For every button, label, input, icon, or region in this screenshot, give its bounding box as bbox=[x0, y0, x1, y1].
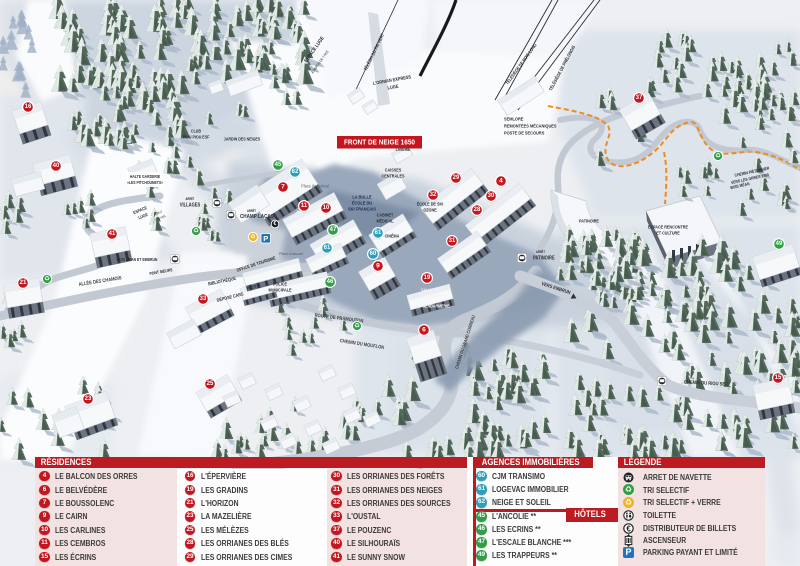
svg-text:OZONE: OZONE bbox=[423, 207, 437, 212]
svg-text:CAISSES: CAISSES bbox=[385, 167, 402, 172]
svg-text:MÉDICAL: MÉDICAL bbox=[376, 218, 394, 223]
svg-text:ÉCOLE DE SKI: ÉCOLE DE SKI bbox=[417, 201, 444, 206]
svg-text:P: P bbox=[263, 234, 268, 243]
svg-text:ET CULTURE: ET CULTURE bbox=[656, 230, 680, 235]
svg-text:4: 4 bbox=[499, 178, 503, 185]
svg-text:32: 32 bbox=[430, 192, 437, 198]
svg-text:REMONTÉES MÉCANIQUES: REMONTÉES MÉCANIQUES bbox=[504, 123, 557, 128]
svg-text:SÉMINAIRES: SÉMINAIRES bbox=[419, 293, 442, 298]
svg-text:ESPACE RENCONTRE: ESPACE RENCONTRE bbox=[648, 224, 688, 229]
svg-text:CHAMP LACAS: CHAMP LACAS bbox=[240, 214, 274, 221]
svg-text:28: 28 bbox=[474, 207, 481, 213]
svg-text:33: 33 bbox=[200, 296, 207, 302]
svg-text:SKI FRANÇAIS: SKI FRANÇAIS bbox=[348, 206, 376, 211]
svg-text:Place du festival: Place du festival bbox=[301, 183, 329, 188]
svg-text:POSTE DE SECOURS: POSTE DE SECOURS bbox=[504, 130, 544, 135]
svg-text:♻: ♻ bbox=[354, 323, 360, 330]
svg-text:LA BULLE: LA BULLE bbox=[352, 194, 371, 199]
svg-text:46: 46 bbox=[327, 279, 334, 285]
svg-text:60: 60 bbox=[370, 251, 377, 257]
svg-text:25: 25 bbox=[207, 381, 214, 387]
svg-text:♻: ♻ bbox=[250, 234, 256, 241]
svg-text:CINÉMA: CINÉMA bbox=[385, 233, 400, 238]
svg-text:6: 6 bbox=[422, 327, 426, 334]
svg-text:GENDARMERIE: GENDARMERIE bbox=[422, 303, 449, 308]
svg-text:♻: ♻ bbox=[715, 153, 721, 160]
svg-text:62: 62 bbox=[292, 169, 299, 175]
svg-text:ÉCOLE DU: ÉCOLE DU bbox=[352, 200, 372, 205]
svg-text:POLICE: POLICE bbox=[273, 281, 287, 286]
svg-text:«LES PITCHOUNETS»: «LES PITCHOUNETS» bbox=[127, 181, 163, 185]
svg-text:♻: ♻ bbox=[193, 228, 199, 235]
svg-text:€: € bbox=[626, 524, 631, 533]
svg-text:19: 19 bbox=[424, 275, 431, 281]
svg-text:29: 29 bbox=[453, 175, 460, 181]
svg-text:ARRÊT: ARRÊT bbox=[247, 208, 256, 213]
svg-text:37: 37 bbox=[636, 95, 643, 101]
svg-text:PATINOIRE: PATINOIRE bbox=[533, 255, 555, 260]
svg-text:40: 40 bbox=[53, 163, 60, 169]
svg-text:30: 30 bbox=[488, 193, 495, 199]
svg-text:HALTE GARDERIE: HALTE GARDERIE bbox=[130, 175, 161, 179]
svg-text:15: 15 bbox=[775, 375, 782, 381]
svg-text:MUNICIPALE: MUNICIPALE bbox=[268, 287, 291, 292]
svg-text:7: 7 bbox=[281, 184, 285, 191]
svg-text:Place d'accueil: Place d'accueil bbox=[279, 252, 303, 256]
svg-text:47: 47 bbox=[330, 227, 337, 233]
svg-text:ARRÊT: ARRÊT bbox=[536, 249, 545, 254]
svg-text:€: € bbox=[274, 221, 277, 227]
svg-text:21: 21 bbox=[20, 280, 27, 286]
svg-text:11: 11 bbox=[301, 203, 308, 209]
svg-text:31: 31 bbox=[449, 238, 456, 244]
svg-text:LAVERIE: LAVERIE bbox=[396, 148, 411, 152]
svg-text:PATINOIRE: PATINOIRE bbox=[579, 218, 599, 223]
svg-text:41: 41 bbox=[109, 231, 116, 237]
svg-text:16: 16 bbox=[25, 104, 32, 110]
svg-text:ARRÊT: ARRÊT bbox=[186, 196, 195, 201]
svg-text:JARDIN DES NEIGES: JARDIN DES NEIGES bbox=[224, 136, 261, 141]
svg-text:♻: ♻ bbox=[44, 276, 50, 283]
svg-text:CABINET: CABINET bbox=[377, 212, 394, 217]
svg-text:61: 61 bbox=[375, 230, 382, 236]
svg-text:49: 49 bbox=[776, 241, 783, 247]
svg-text:VILLAGES: VILLAGES bbox=[180, 202, 200, 207]
svg-text:SALLE DE: SALLE DE bbox=[421, 287, 439, 292]
svg-text:FRONT DE NEIGE 1650: FRONT DE NEIGE 1650 bbox=[344, 139, 415, 147]
svg-text:9: 9 bbox=[376, 263, 380, 270]
svg-text:10: 10 bbox=[323, 205, 330, 211]
svg-text:45: 45 bbox=[275, 162, 282, 168]
svg-text:CENTRALES: CENTRALES bbox=[382, 173, 405, 178]
svg-text:BOIS MEAN ET EMBRUN: BOIS MEAN ET EMBRUN bbox=[117, 258, 158, 262]
svg-text:CLUB: CLUB bbox=[191, 128, 201, 133]
svg-text:PIOU PIOU ESF: PIOU PIOU ESF bbox=[183, 134, 210, 139]
svg-text:23: 23 bbox=[85, 396, 92, 402]
svg-text:SEMLORE: SEMLORE bbox=[504, 116, 523, 121]
svg-text:61: 61 bbox=[324, 245, 331, 251]
